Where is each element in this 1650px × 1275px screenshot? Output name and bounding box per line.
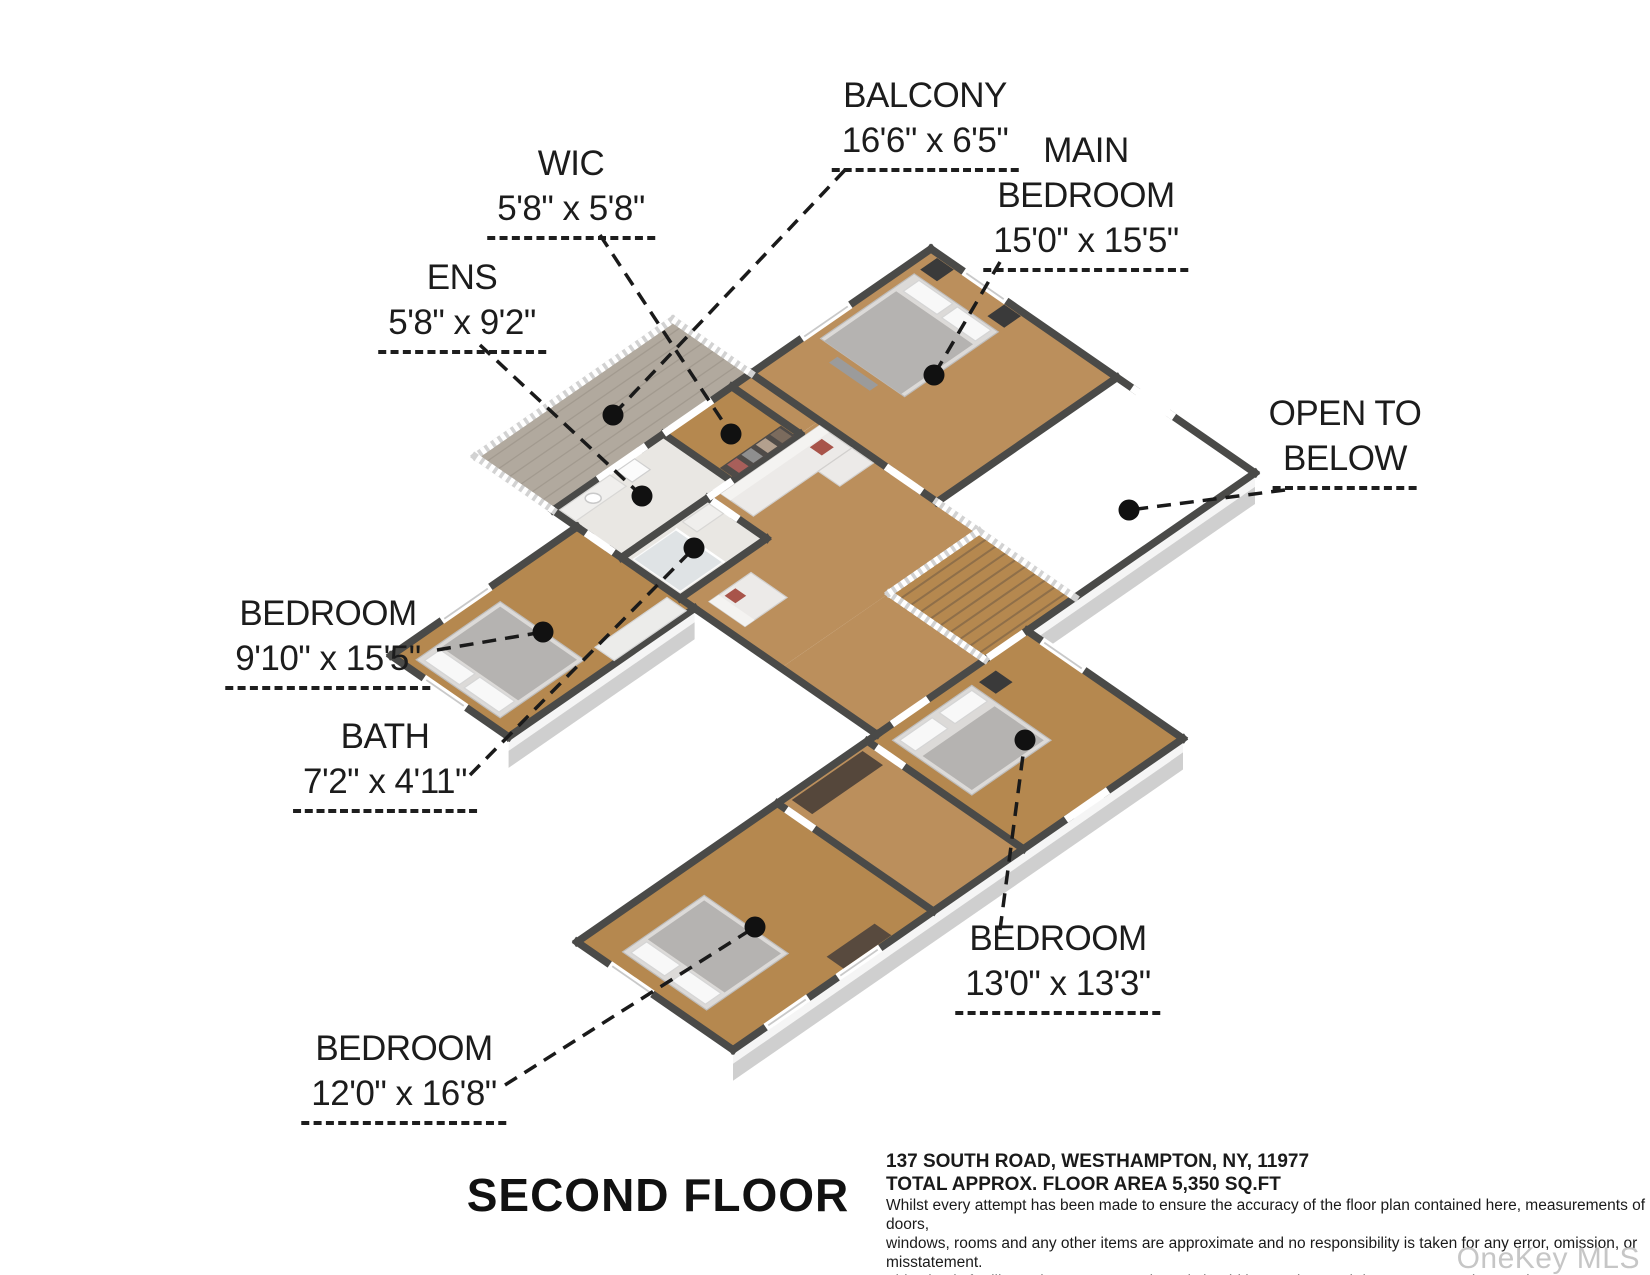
- floor-area-line: TOTAL APPROX. FLOOR AREA 5,350 SQ.FT: [886, 1173, 1650, 1196]
- page-title: SECOND FLOOR: [467, 1168, 850, 1222]
- room-dims: 12'0" x 16'8": [301, 1071, 506, 1125]
- label-bath: BATH 7'2" x 4'11": [293, 714, 477, 813]
- room-name: BEDROOM: [955, 916, 1160, 961]
- room-dims: 7'2" x 4'11": [293, 759, 477, 813]
- room-name: ENS: [378, 255, 546, 300]
- leader-dot-open-to-below: [1119, 500, 1140, 521]
- room-name: MAIN: [983, 128, 1188, 173]
- room-dims: 9'10" x 15'5": [225, 636, 430, 690]
- leader-dot-bedroom-bottom-right: [1015, 730, 1036, 751]
- room-dims: 13'0" x 13'3": [955, 961, 1160, 1015]
- mls-watermark: OneKey MLS: [1457, 1242, 1640, 1275]
- label-ens: ENS 5'8" x 9'2": [378, 255, 546, 354]
- room-name: BELOW: [1269, 436, 1422, 490]
- room-name: WIC: [487, 141, 655, 186]
- room-dims: 5'8" x 9'2": [378, 300, 546, 354]
- label-main-bedroom: MAIN BEDROOM 15'0" x 15'5": [983, 128, 1188, 272]
- room-dims: 15'0" x 15'5": [983, 218, 1188, 272]
- label-wic: WIC 5'8" x 5'8": [487, 141, 655, 240]
- label-bedroom-bottom-right: BEDROOM 13'0" x 13'3": [955, 916, 1160, 1015]
- room-name: BEDROOM: [983, 173, 1188, 218]
- leader-dot-balcony: [603, 405, 624, 426]
- label-bedroom-bottom-left: BEDROOM 12'0" x 16'8": [301, 1026, 506, 1125]
- leader-dot-wic: [721, 424, 742, 445]
- floor-plan-page: BALCONY 16'6" x 6'5" WIC 5'8" x 5'8" MAI…: [0, 0, 1650, 1275]
- room-name: BEDROOM: [225, 591, 430, 636]
- label-bedroom-left: BEDROOM 9'10" x 15'5": [225, 591, 430, 690]
- leader-dot-bedroom-left: [533, 622, 554, 643]
- room-name: BEDROOM: [301, 1026, 506, 1071]
- label-open-to-below: OPEN TO BELOW: [1269, 391, 1422, 490]
- leader-dot-main-bedroom: [924, 365, 945, 386]
- leader-dot-ens: [632, 486, 653, 507]
- room-name: BALCONY: [832, 73, 1019, 118]
- ens-sink: [585, 493, 601, 503]
- room-name: OPEN TO: [1269, 391, 1422, 436]
- room-dims: 5'8" x 5'8": [487, 186, 655, 240]
- disclaimer-line: Whilst every attempt has been made to en…: [886, 1196, 1650, 1234]
- address-line: 137 SOUTH ROAD, WESTHAMPTON, NY, 11977: [886, 1150, 1650, 1173]
- leader-dot-bedroom-bottom-left: [745, 917, 766, 938]
- room-name: BATH: [293, 714, 477, 759]
- leader-dot-bath: [684, 538, 705, 559]
